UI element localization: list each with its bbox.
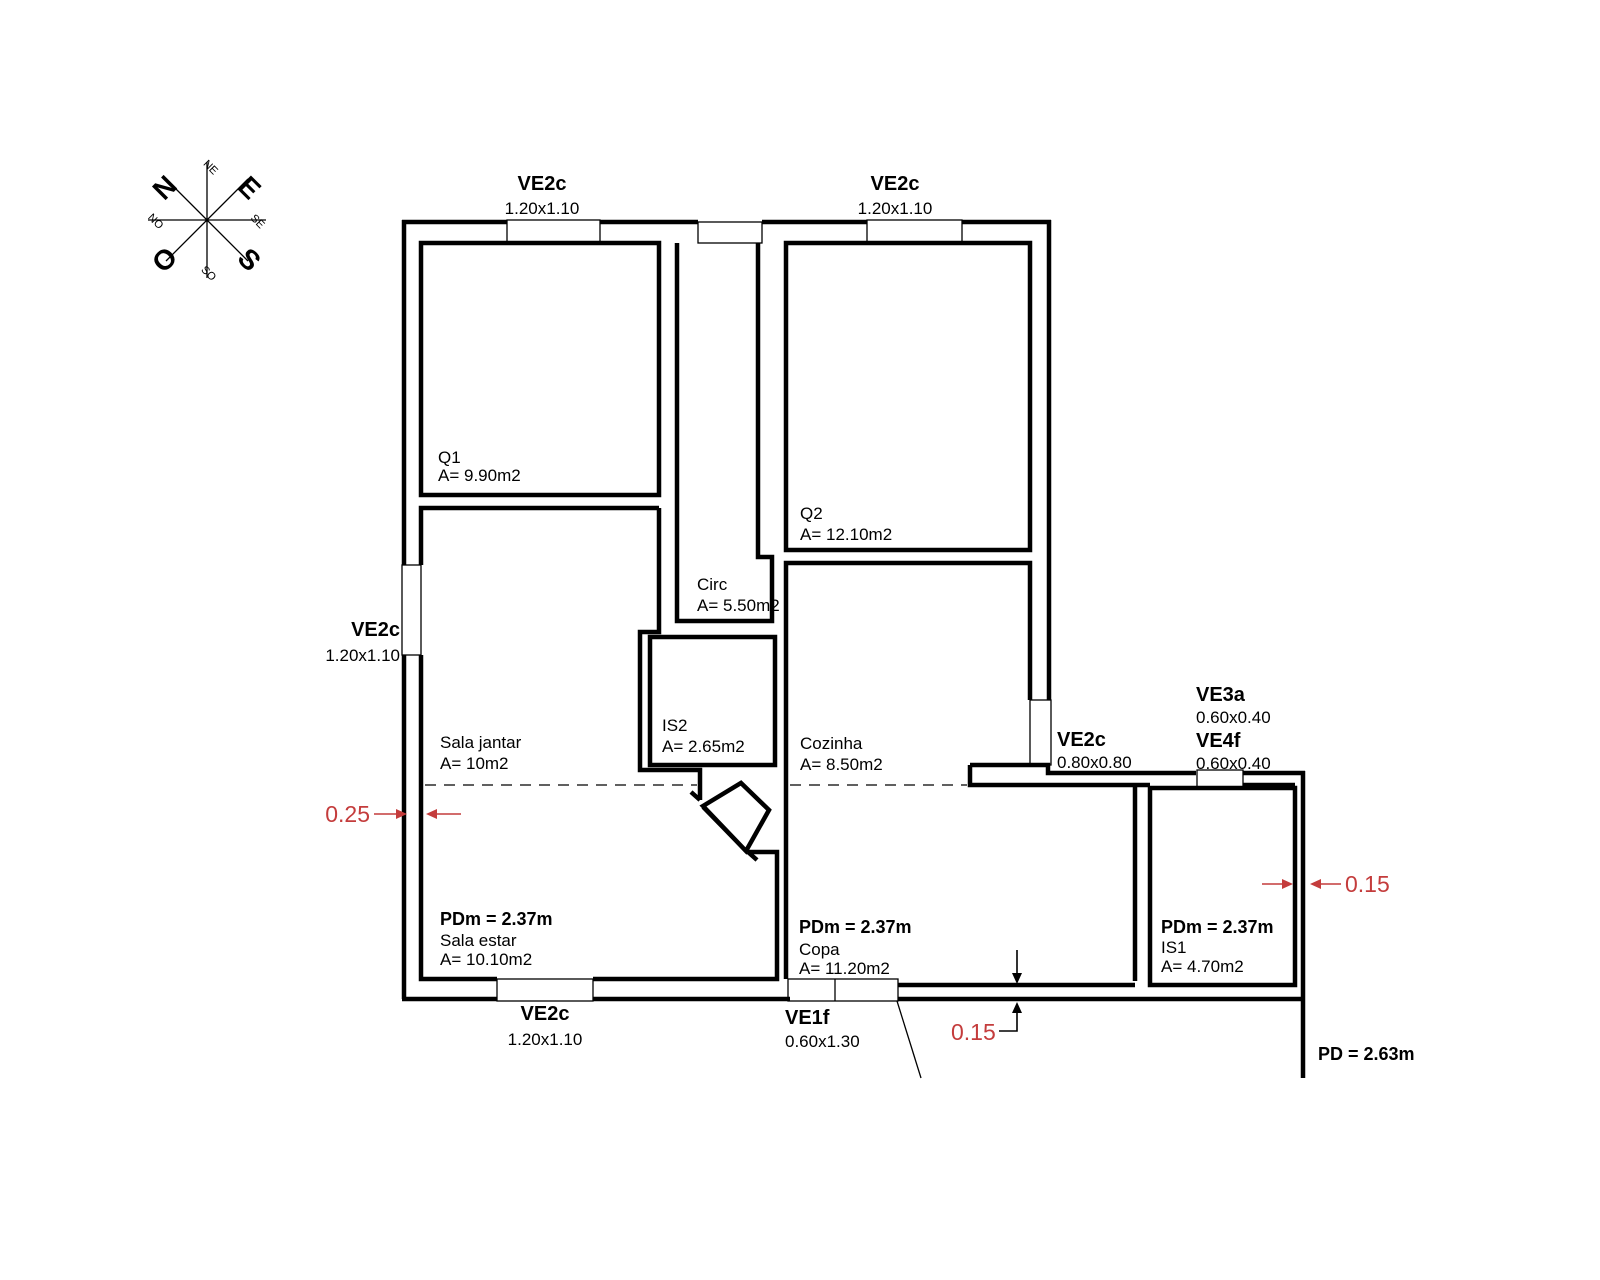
dim-bottom-wall-lines	[999, 950, 1017, 1031]
window-bottom-size: 1.20x1.10	[508, 1030, 583, 1049]
window-ve3a-code: VE3a	[1196, 684, 1246, 706]
compass-se-label: SE	[248, 212, 267, 231]
room-circ-name: Circ	[697, 575, 728, 594]
floor-plan-canvas: N E O S NE SE SO NO	[0, 0, 1600, 1280]
dim-left-wall-value: 0.25	[325, 801, 370, 827]
room-copa-area: A= 11.20m2	[799, 959, 890, 978]
room-sala-estar-area: A= 10.10m2	[440, 950, 532, 969]
compass-ne-label: NE	[201, 158, 220, 177]
room-cozinha-area: A= 8.50m2	[800, 755, 883, 774]
compass-rose: N E O S NE SE SO NO	[145, 158, 267, 284]
compass-south-label: S	[232, 242, 267, 277]
dim-right-wall-arrow-right	[1282, 879, 1293, 889]
door-opening-ve1f	[788, 979, 898, 1001]
room-is1-name: IS1	[1161, 938, 1187, 957]
window-top-left	[507, 220, 600, 243]
ceiling-height-note: PD = 2.63m	[1318, 1044, 1415, 1064]
window-ve4f-code: VE4f	[1196, 730, 1241, 752]
compass-so-label: SO	[198, 264, 218, 284]
window-right-code: VE2c	[1057, 729, 1106, 751]
room-sala-estar-name: Sala estar	[440, 931, 517, 950]
window-ve4f-size: 0.60x0.40	[1196, 754, 1271, 773]
interior-door-leaf	[703, 783, 769, 851]
window-top-right-code: VE2c	[871, 173, 920, 195]
room-q1-area: A= 9.90m2	[438, 466, 521, 485]
room-q2-name: Q2	[800, 504, 823, 523]
window-bottom	[497, 979, 593, 1001]
compass-no-label: NO	[145, 212, 165, 232]
room-cozinha-name: Cozinha	[800, 734, 863, 753]
dim-right-wall-value: 0.15	[1345, 871, 1390, 897]
opening-top-middle	[698, 222, 762, 243]
window-left	[402, 565, 421, 655]
dim-left-wall-arrow-left	[426, 809, 437, 819]
window-ve3a-size: 0.60x0.40	[1196, 708, 1271, 727]
dim-bottom-wall-arrow-down	[1012, 973, 1022, 984]
room-q1-name: Q1	[438, 448, 461, 467]
dim-bottom-wall-value: 0.15	[951, 1019, 996, 1045]
compass-north-label: N	[147, 170, 183, 206]
window-left-size: 1.20x1.10	[325, 646, 400, 665]
room-sala-estar-pdm: PDm = 2.37m	[440, 909, 553, 929]
compass-west-label: O	[146, 241, 183, 278]
room-circ-walls	[677, 243, 772, 621]
dim-right-wall-arrow-left	[1310, 879, 1321, 889]
interior-door-swing-line	[702, 808, 745, 852]
compass-east-label: E	[232, 170, 267, 205]
room-copa-name: Copa	[799, 940, 840, 959]
room-q2-area: A= 12.10m2	[800, 525, 892, 544]
door-ve1f-code: VE1f	[785, 1007, 830, 1029]
room-is2-name: IS2	[662, 716, 688, 735]
room-circ-area: A= 5.50m2	[697, 596, 780, 615]
floor-plan-svg: N E O S NE SE SO NO	[0, 0, 1600, 1280]
room-is1-pdm: PDm = 2.37m	[1161, 917, 1274, 937]
window-top-right	[867, 220, 962, 243]
window-right-size: 0.80x0.80	[1057, 753, 1132, 772]
window-left-code: VE2c	[351, 619, 400, 641]
room-is1-area: A= 4.70m2	[1161, 957, 1244, 976]
window-top-right-size: 1.20x1.10	[858, 199, 933, 218]
room-sala-jantar-name: Sala jantar	[440, 733, 522, 752]
room-is2-area: A= 2.65m2	[662, 737, 745, 756]
room-copa-pdm: PDm = 2.37m	[799, 917, 912, 937]
window-right	[1030, 700, 1051, 765]
window-top-left-size: 1.20x1.10	[505, 199, 580, 218]
door-ve1f-size: 0.60x1.30	[785, 1032, 860, 1051]
window-bottom-code: VE2c	[521, 1003, 570, 1025]
window-top-left-code: VE2c	[518, 173, 567, 195]
dim-bottom-wall-arrow-up	[1012, 1002, 1022, 1013]
room-sala-jantar-area: A= 10m2	[440, 754, 509, 773]
entry-door-swing-line	[897, 1001, 921, 1078]
